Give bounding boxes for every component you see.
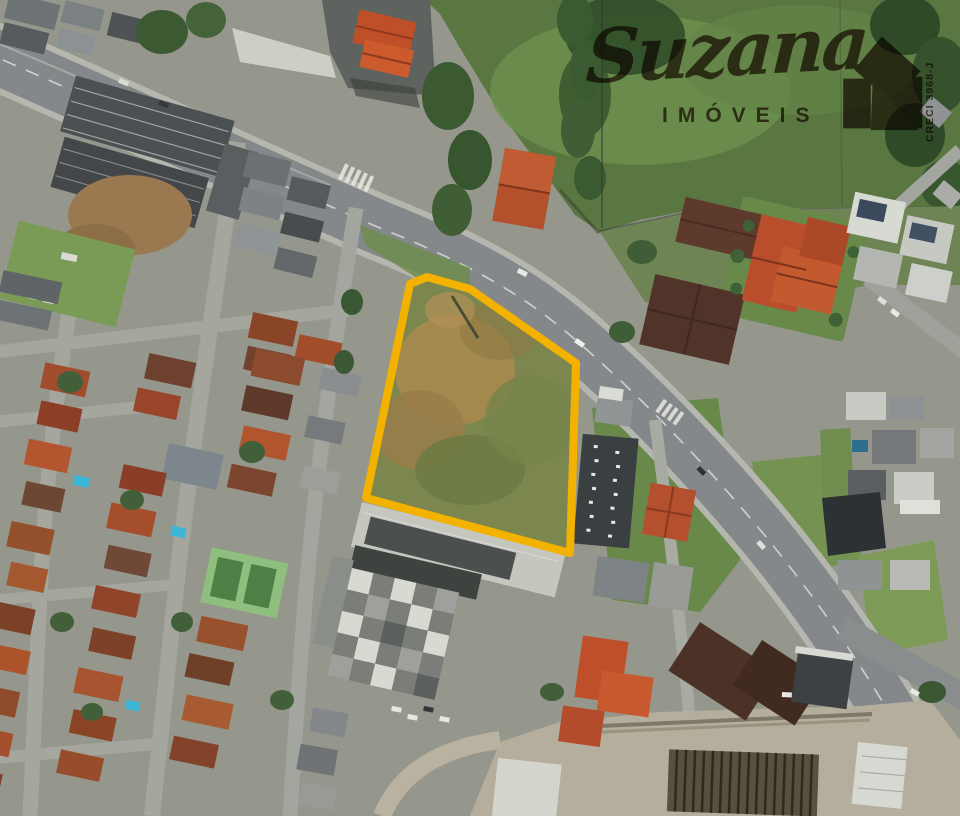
tree [432, 184, 472, 236]
slatted-barn [667, 749, 819, 816]
aerial-photo: Suzana IMÓVEIS CRECI 3968-J [0, 0, 960, 816]
aerial-scene [0, 0, 960, 816]
orange-house-east [642, 483, 696, 542]
dark-warehouse-skylights [573, 434, 638, 548]
tree [448, 130, 492, 190]
water-tank [852, 440, 868, 452]
tree [186, 2, 226, 38]
tree [422, 62, 474, 130]
tree [136, 10, 188, 54]
